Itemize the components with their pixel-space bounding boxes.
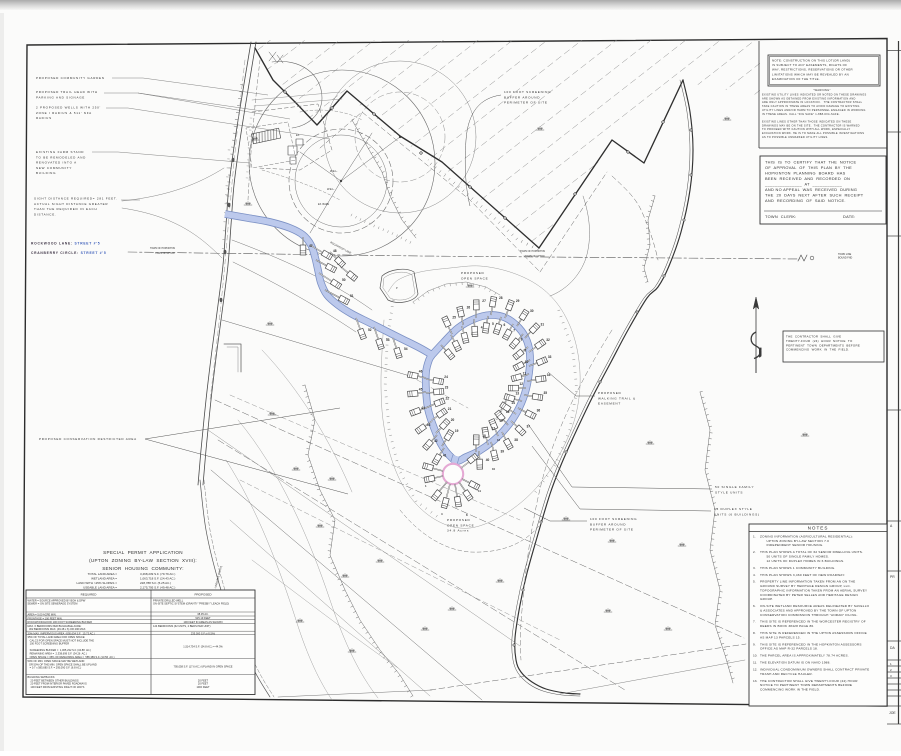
svg-text:30% MAX. IMPERVIOUS AREA (695: 30% MAX. IMPERVIOUS AREA (695,634 S.F. 1…: [28, 632, 95, 636]
svg-text:12: 12: [497, 438, 501, 442]
svg-text:100 FOOT SCREENING BUFFER: 100 FOOT SCREENING BUFFER: [28, 642, 70, 646]
svg-text:BOUND FND: BOUND FND: [838, 256, 852, 259]
svg-text:= 0.7 x 585,680 S.F. = 295,090: = 0.7 x 585,680 S.F. = 295,090 S.F. (6.8…: [28, 666, 82, 670]
svg-text:13.: 13.: [753, 679, 757, 683]
svg-text:42: 42: [434, 439, 438, 443]
svg-text:1,514,734 S.F. (34.8 AC.) = 44: 1,514,734 S.F. (34.8 AC.) = 44.3%: [183, 645, 223, 649]
svg-text:RENOVATED INTO A: RENOVATED INTO A: [36, 161, 77, 165]
svg-text:TO PROCEED WITH CAUTION WITH A: TO PROCEED WITH CAUTION WITH ALL WORK, E…: [762, 127, 851, 131]
svg-text:3.: 3.: [753, 566, 756, 570]
svg-text:302 BEDROOMS MAX. (49.48 x 6): 302 BEDROOMS MAX. (49.48 x 6) OR 296 MAX…: [28, 627, 87, 631]
svg-text:AND RECORDING OF SAID NOTI: AND RECORDING OF SAID NOTICE.: [765, 198, 846, 203]
svg-text:UTILITY LINES AND/OR HARM TO P: UTILITY LINES AND/OR HARM TO PERSONNEL E…: [762, 108, 866, 112]
svg-text:WAY, RESTRICTIONS, RESERVATION: WAY, RESTRICTIONS, RESERVATIONS OR OTHER: [772, 68, 853, 72]
svg-text:AND NO APPEAL WAS RECEIVED: AND NO APPEAL WAS RECEIVED DURING: [765, 187, 857, 192]
svg-text:THIS SITE IS REFERENCED IN THE: THIS SITE IS REFERENCED IN THE UPTON ASS…: [760, 631, 867, 635]
svg-text:4.: 4.: [753, 573, 756, 577]
svg-text:31: 31: [541, 322, 545, 326]
svg-text:40: 40: [486, 458, 490, 462]
svg-text:AS TO POSSIBLE UNMARKED UTILIT: AS TO POSSIBLE UNMARKED UTILITY LINES.: [762, 135, 828, 139]
svg-text:TAKE CAUTION IN THESE AREAS TO: TAKE CAUTION IN THESE AREAS TO AVOID DAM…: [762, 104, 860, 108]
svg-text:50 SINGLE FAMILY: 50 SINGLE FAMILY: [715, 485, 754, 489]
svg-text:SEWER = ON SITE SEWERAGE SYSTE: SEWER = ON SITE SEWERAGE SYSTEM: [28, 602, 78, 606]
svg-text:STYLE UNITS: STYLE UNITS: [715, 490, 743, 494]
svg-text:GROUP.: GROUP.: [760, 597, 773, 601]
svg-text:2.: 2.: [753, 550, 756, 554]
svg-text:PROPERTY LINE INFORMATION TAKE: PROPERTY LINE INFORMATION TAKEN FROM AN …: [760, 580, 855, 584]
svg-text:(UPTON ZONING BY-LAW SECTIO: (UPTON ZONING BY-LAW SECTION XVIII):: [89, 558, 197, 563]
svg-text:22: 22: [446, 396, 450, 400]
svg-text:THE 20 DAYS NEXT AFTER SU: THE 20 DAYS NEXT AFTER SUCH RECEIPT: [765, 193, 864, 198]
svg-text:16: 16: [499, 418, 503, 422]
svg-text:50 UNITS OF SINGLE FAMILY HOME: 50 UNITS OF SINGLE FAMILY HOMES.: [760, 555, 829, 559]
svg-text:EXISTING LINES OTHER THAN THOS: EXISTING LINES OTHER THAN THOSE INDICATE…: [762, 120, 852, 124]
svg-text:WALKING TRAIL &: WALKING TRAIL &: [598, 396, 636, 400]
svg-text:DRAWINGS MAY BE ON THE SITE.: DRAWINGS MAY BE ON THE SITE. THE CONTRAC…: [762, 123, 860, 127]
svg-text:28: 28: [499, 296, 503, 300]
svg-text:10: 10: [492, 467, 496, 471]
svg-text:25: 25: [452, 316, 456, 320]
svg-text:8.: 8.: [753, 631, 756, 635]
svg-text:ARE ONLY APPROXIMATE IN LOCATI: ARE ONLY APPROXIMATE IN LOCATION. THE CO…: [762, 100, 863, 104]
svg-text:OPEN SPACE: OPEN SPACE: [461, 276, 488, 280]
svg-text:PERTINENT TOWN DEPARTMENTS: PERTINENT TOWN DEPARTMENTS BEFORE: [786, 343, 860, 347]
svg-text:TOTAL LAND AREA =: TOTAL LAND AREA =: [88, 572, 118, 576]
svg-text:EXISTING FARM STAND: EXISTING FARM STAND: [36, 150, 84, 154]
svg-text:100 FEET FROM EXISTING RIGHT O: 100 FEET FROM EXISTING RIGHT OF WAYS: [28, 685, 85, 689]
svg-text:DISTANCE.: DISTANCE.: [34, 212, 57, 216]
svg-text:THIS PLAN SHOWS 3,460 FEET OF: THIS PLAN SHOWS 3,460 FEET OF NEW ROADWA…: [760, 573, 845, 577]
svg-text:THE ELEVATION DATUM IS ON NAVD: THE ELEVATION DATUM IS ON NAVD 1988.: [760, 661, 831, 665]
svg-text:26: 26: [467, 306, 471, 310]
svg-text:JOE: JOE: [889, 711, 896, 715]
svg-text:_______________ AT _________: _______________ AT ____________: [764, 182, 843, 187]
svg-text:INDIVIDUAL CONDOMINIUM OWNERS: INDIVIDUAL CONDOMINIUM OWNERS SHALL CONT…: [760, 668, 869, 672]
svg-text:45: 45: [419, 388, 423, 392]
svg-text:39: 39: [501, 449, 505, 453]
svg-text:34.8 Acres: 34.8 Acres: [447, 529, 469, 533]
svg-text:2,175,795 S.F. (49.48 AC.): 2,175,795 S.F. (49.48 AC.): [140, 586, 175, 590]
svg-text:43: 43: [427, 423, 431, 427]
svg-text:PROPOSED: PROPOSED: [461, 271, 485, 275]
svg-text:DEEDS IN BOOK 38428 PAGE 86.: DEEDS IN BOOK 38428 PAGE 86.: [760, 624, 814, 628]
svg-text:EX. BARN: EX. BARN: [318, 203, 329, 206]
svg-text:AS MAP 13 PARCELS 15.: AS MAP 13 PARCELS 15.: [760, 635, 801, 639]
svg-text:5.: 5.: [753, 580, 756, 584]
svg-text:THAN THE REQUIRED IN EACH: THAN THE REQUIRED IN EACH: [34, 207, 97, 211]
svg-text:12 UNITS OF DUPLEX HOMES IN 6: 12 UNITS OF DUPLEX HOMES IN 6 BUILDINGS.: [760, 559, 844, 563]
svg-text:TOWN OF UPTON: TOWN OF UPTON: [155, 253, 175, 255]
svg-text:795,058 S.F. (17.6 AC.) UPLAND: 795,058 S.F. (17.6 AC.) UPLAND IN OPEN S…: [174, 665, 233, 669]
svg-text:PROPOSED: PROPOSED: [194, 593, 212, 597]
svg-text:EXAMINATION OF THE TITLE.: EXAMINATION OF THE TITLE.: [772, 77, 820, 81]
svg-text:46: 46: [419, 369, 423, 373]
svg-text:1.: 1.: [753, 535, 756, 539]
svg-text:NEW COMMUNITY: NEW COMMUNITY: [36, 166, 72, 170]
svg-text:THE PARCEL AREA IS APPROXIMATE: THE PARCEL AREA IS APPROXIMATELY 78.74 A…: [760, 654, 849, 658]
svg-text:11: 11: [523, 372, 527, 376]
svg-text:COORDINATED BY PETER SELLES AN: COORDINATED BY PETER SELLES AND HERITAGE…: [760, 593, 858, 597]
svg-text:COMMENCING WORK IN THE FIELD.: COMMENCING WORK IN THE FIELD.: [760, 688, 820, 692]
svg-text:TO BE REMODELED AND: TO BE REMODELED AND: [36, 155, 86, 159]
svg-text:USEABLE LAND AREA =: USEABLE LAND AREA =: [83, 586, 117, 590]
svg-text:EASEMENT: EASEMENT: [598, 402, 621, 406]
svg-text:33: 33: [548, 355, 552, 359]
svg-text:51: 51: [350, 294, 354, 298]
svg-text:TOWN OF UPTON: TOWN OF UPTON: [525, 256, 545, 258]
svg-text:100 FOOT SCREENING: 100 FOOT SCREENING: [504, 90, 551, 94]
svg-text:DATE:: DATE:: [843, 214, 856, 219]
svg-text:CONSERVATION COMMISSION THROUG: CONSERVATION COMMISSION THROUGH "ANRAD" …: [760, 613, 858, 617]
svg-text:50: 50: [342, 278, 346, 282]
svg-text:PR: PR: [890, 575, 895, 579]
svg-text:4: 4: [481, 325, 483, 329]
svg-text:PROPOSED TRAIL HEAD WITH: PROPOSED TRAIL HEAD WITH: [36, 90, 98, 94]
svg-text:124 BEDROOMS (62 UNITS, 2 BEDS: 124 BEDROOMS (62 UNITS, 2 BEDS PER UNIT): [153, 624, 211, 628]
svg-text:TOWN CLERK:: TOWN CLERK:: [765, 214, 797, 219]
svg-text:9: 9: [524, 349, 526, 353]
svg-text:24: 24: [444, 375, 448, 379]
svg-text:36: 36: [537, 409, 541, 413]
svg-text:LAND WITH >25% SLOPES =: LAND WITH >25% SLOPES =: [76, 581, 117, 585]
svg-text:41: 41: [443, 453, 447, 457]
svg-text:LIMITATIONS WHICH MAY BE REVEA: LIMITATIONS WHICH MAY BE REVEALED BY AN: [772, 72, 849, 76]
svg-text:PROPOSED: PROPOSED: [447, 518, 471, 522]
svg-text:18: 18: [482, 434, 486, 438]
svg-text:EXCAVATION WORK. HE IS TO MAKE: EXCAVATION WORK. HE IS TO MAKE ALL POSSI…: [762, 131, 864, 135]
svg-text:PROPOSED COMMUNITY GARDEN: PROPOSED COMMUNITY GARDEN: [36, 76, 105, 80]
svg-text:8: 8: [521, 338, 523, 342]
svg-text:TOWN OF HOPKINTON: TOWN OF HOPKINTON: [150, 248, 175, 250]
svg-text:3,468,239 S.F. (79.79 AC.): 3,468,239 S.F. (79.79 AC.): [140, 572, 175, 576]
svg-text:PERIMETER OF SITE: PERIMETER OF SITE: [590, 528, 634, 532]
svg-text:THIS IS TO CERTIFY THAT T: THIS IS TO CERTIFY THAT THE NOTICE: [765, 160, 857, 165]
svg-text:& ASSOCIATES AND APPROVED BY T: & ASSOCIATES AND APPROVED BY THE TOWN OF…: [760, 608, 856, 612]
svg-text:38.35 AC.: 38.35 AC.: [197, 612, 209, 616]
svg-text:BUILDING: BUILDING: [36, 171, 56, 175]
svg-text:TOPOGRAPHIC INFORMATION TAKEN: TOPOGRAPHIC INFORMATION TAKEN FROM AN AE…: [760, 588, 867, 592]
svg-text:ON-SITE SEPTIC SYSTEM (GRAVITY: ON-SITE SEPTIC SYSTEM (GRAVITY "PRESBY" …: [153, 602, 229, 606]
svg-text:15: 15: [506, 410, 510, 414]
svg-text:THIS SITE IS REFERENCED IN THE: THIS SITE IS REFERENCED IN THE WORCESTER…: [760, 620, 866, 624]
svg-text:REQUIRED: REQUIRED: [81, 593, 98, 597]
svg-text:12 DUPLEX STYLE: 12 DUPLEX STYLE: [714, 507, 753, 511]
svg-text:48: 48: [333, 249, 337, 253]
svg-text:ACTUAL SIGHT DISTANCE GREATER: ACTUAL SIGHT DISTANCE GREATER: [34, 202, 108, 206]
svg-text:10: 10: [525, 360, 529, 364]
svg-text:ZONING INFORMATION (AGRICULTUR: ZONING INFORMATION (AGRICULTURAL RESIDEN…: [760, 535, 853, 539]
svg-text:THIS PLAN SHOWS A TOTAL OF 62: THIS PLAN SHOWS A TOTAL OF 62 SENIOR DWE…: [760, 550, 863, 554]
svg-text:35: 35: [544, 391, 548, 395]
svg-text:44: 44: [421, 406, 425, 410]
svg-text:5: 5: [492, 322, 494, 326]
svg-text:COMMENCING WORK IN THE FIE: COMMENCING WORK IN THE FIELD.: [786, 348, 849, 352]
svg-text:100± FEET: 100± FEET: [196, 685, 210, 689]
svg-text:17: 17: [492, 427, 496, 431]
svg-text:OFFICE AS MAP R-32 PARCELS 18.: OFFICE AS MAP R-32 PARCELS 18.: [760, 647, 818, 651]
svg-text:OF APPROVAL OF THIS PLAN: OF APPROVAL OF THIS PLAN BY THE: [765, 165, 852, 170]
svg-text:SENIOR HOUSING COMMUNITY:: SENIOR HOUSING COMMUNITY:: [102, 566, 184, 571]
svg-text:PERIMETER OF SITE: PERIMETER OF SITE: [504, 101, 548, 105]
svg-text:38: 38: [514, 438, 518, 442]
svg-text:9.: 9.: [753, 642, 756, 646]
svg-text:13: 13: [516, 392, 520, 396]
svg-text:11.: 11.: [753, 661, 757, 665]
svg-text:CRANBERRY CIRCLE: STREET #'5: CRANBERRY CIRCLE: STREET #'5: [31, 251, 106, 255]
svg-text:29: 29: [516, 299, 520, 303]
svg-text:NOTICE TO PERTINENT TOWN DEPAR: NOTICE TO PERTINENT TOWN DEPARTMENTS BEF…: [760, 683, 852, 687]
svg-text:PARKING AND SIGNAGE: PARKING AND SIGNAGE: [36, 95, 85, 99]
svg-text:OPEN SPACE: OPEN SPACE: [447, 523, 474, 527]
svg-text:EXISTING UTILITY LINES INDICAT: EXISTING UTILITY LINES INDICATED OR NOTE…: [762, 93, 867, 97]
svg-text:7.: 7.: [753, 620, 756, 624]
svg-text:THIS PLAN SHOWS 1 COMMUNITY BU: THIS PLAN SHOWS 1 COMMUNITY BUILDING.: [760, 566, 835, 570]
svg-text:ZONE I RADIUS & 511' NFA: ZONE I RADIUS & 511' NFA: [36, 111, 92, 115]
svg-text:6.: 6.: [753, 604, 756, 608]
svg-text:30: 30: [530, 309, 534, 313]
svg-text:1,063,718 S.F. (24.43 AC.): 1,063,718 S.F. (24.43 AC.): [140, 577, 175, 581]
svg-text:TRASH AND RECYCLE HAULER.: TRASH AND RECYCLE HAULER.: [760, 672, 813, 676]
svg-text:2 PROPOSED WELLS WITH 250': 2 PROPOSED WELLS WITH 250': [36, 106, 101, 110]
svg-text:53: 53: [386, 338, 390, 342]
svg-text:23: 23: [445, 386, 449, 390]
svg-text:PROPOSED: PROPOSED: [598, 391, 622, 395]
svg-text:10.: 10.: [753, 654, 757, 658]
svg-text:27: 27: [482, 299, 486, 303]
svg-text:ARE SHOWN AS OBTAINED FROM EXI: ARE SHOWN AS OBTAINED FROM EXISTING INFO…: [762, 96, 856, 100]
svg-text:12: 12: [520, 382, 524, 386]
svg-text:47: 47: [309, 244, 313, 248]
svg-text:SIGHT DISTANCE REQUIRED= 281 F: SIGHT DISTANCE REQUIRED= 281 FEET.: [34, 197, 118, 201]
svg-text:HOPKINTON PLANNING BOARD HA: HOPKINTON PLANNING BOARD HAS: [765, 171, 846, 176]
svg-text:IS SUBJECT TO ANY EASEMENTS, R: IS SUBJECT TO ANY EASEMENTS, RIGHTS OF: [772, 63, 847, 67]
svg-text:SPECIAL PERMIT APPLICATION: SPECIAL PERMIT APPLICATION: [103, 550, 183, 555]
svg-text:11: 11: [478, 489, 481, 493]
svg-text:100 FOOT SCREENING: 100 FOOT SCREENING: [590, 517, 637, 521]
svg-text:RADIUS: RADIUS: [36, 116, 52, 120]
svg-text:WETLAND AREA =: WETLAND AREA =: [91, 577, 117, 581]
svg-text:"WARNING": "WARNING": [813, 88, 831, 92]
svg-text:THE CONTRACTOR SHALL GIVE: THE CONTRACTOR SHALL GIVE: [786, 335, 841, 339]
svg-text:NOTE: CONSTRUCTION ON THIS LOT: NOTE: CONSTRUCTION ON THIS LOT(OR LAND): [772, 59, 850, 63]
svg-text:BEEN RECEIVED AND RECORDED: BEEN RECEIVED AND RECORDED ON: [765, 176, 850, 181]
svg-text:W.E.L.: W.E.L.: [327, 187, 335, 191]
svg-text:ROCKWOOD LANE: STREET #'5: ROCKWOOD LANE: STREET #'5: [31, 242, 100, 246]
svg-text:DA: DA: [890, 646, 895, 650]
svg-text:OPEN SPACE = 35% OF REMAINING: OPEN SPACE = 35% OF REMAINING AREA = 585…: [28, 655, 115, 659]
svg-text:7: 7: [513, 329, 515, 333]
svg-text:54: 54: [404, 347, 408, 351]
svg-text:NOTES: NOTES: [808, 526, 829, 531]
svg-text:14: 14: [511, 401, 515, 405]
svg-text:IN THESE AREAS. CALL "DIG SAFE: IN THESE AREAS. CALL "DIG SAFE" 1-888-DI…: [762, 112, 840, 116]
svg-text:21: 21: [448, 407, 452, 411]
svg-text:UNITS (6 BUILDINGS): UNITS (6 BUILDINGS): [714, 512, 760, 516]
svg-text:INDEPENDENT SENIOR HOUSING.: INDEPENDENT SENIOR HOUSING.: [760, 543, 823, 547]
svg-text:228,788 S.F. (5.25 AC.): 228,788 S.F. (5.25 AC.): [140, 581, 171, 585]
svg-text:12.: 12.: [753, 668, 757, 672]
svg-text:6: 6: [504, 323, 506, 327]
svg-text:19: 19: [455, 429, 459, 433]
svg-text:BUFFER AROUND: BUFFER AROUND: [504, 95, 540, 99]
svg-text:PROPOSED CONSERVATION RESTRICT: PROPOSED CONSERVATION RESTRICTED AREA: [39, 437, 137, 441]
svg-text:FILE NO.: FILE NO.: [759, 348, 761, 358]
svg-text:52: 52: [368, 328, 372, 332]
svg-text:TWENTY-FOUR (24) HOUR NOTIC: TWENTY-FOUR (24) HOUR NOTICE TO: [786, 339, 853, 343]
svg-text:32: 32: [546, 338, 550, 342]
svg-text:20: 20: [451, 418, 455, 422]
svg-text:BUFFER AROUND: BUFFER AROUND: [590, 522, 626, 526]
svg-text:TOWN OF HOPKINTON: TOWN OF HOPKINTON: [520, 251, 545, 253]
